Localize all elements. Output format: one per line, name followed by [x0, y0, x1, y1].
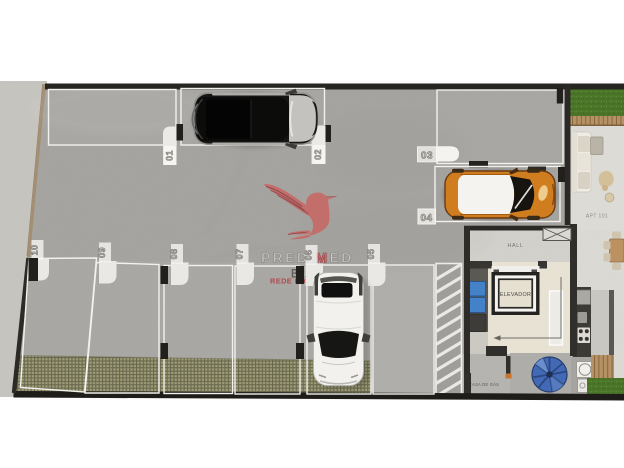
svg-text:05: 05	[366, 249, 376, 260]
svg-text:03: 03	[421, 151, 433, 162]
svg-text:02: 02	[313, 149, 323, 160]
svg-text:01: 01	[165, 150, 175, 161]
svg-text:04: 04	[421, 213, 433, 224]
svg-text:06: 06	[304, 250, 314, 261]
svg-text:08: 08	[169, 249, 179, 260]
svg-text:09: 09	[97, 247, 107, 258]
svg-text:07: 07	[235, 249, 245, 260]
svg-text:10: 10	[30, 245, 40, 256]
